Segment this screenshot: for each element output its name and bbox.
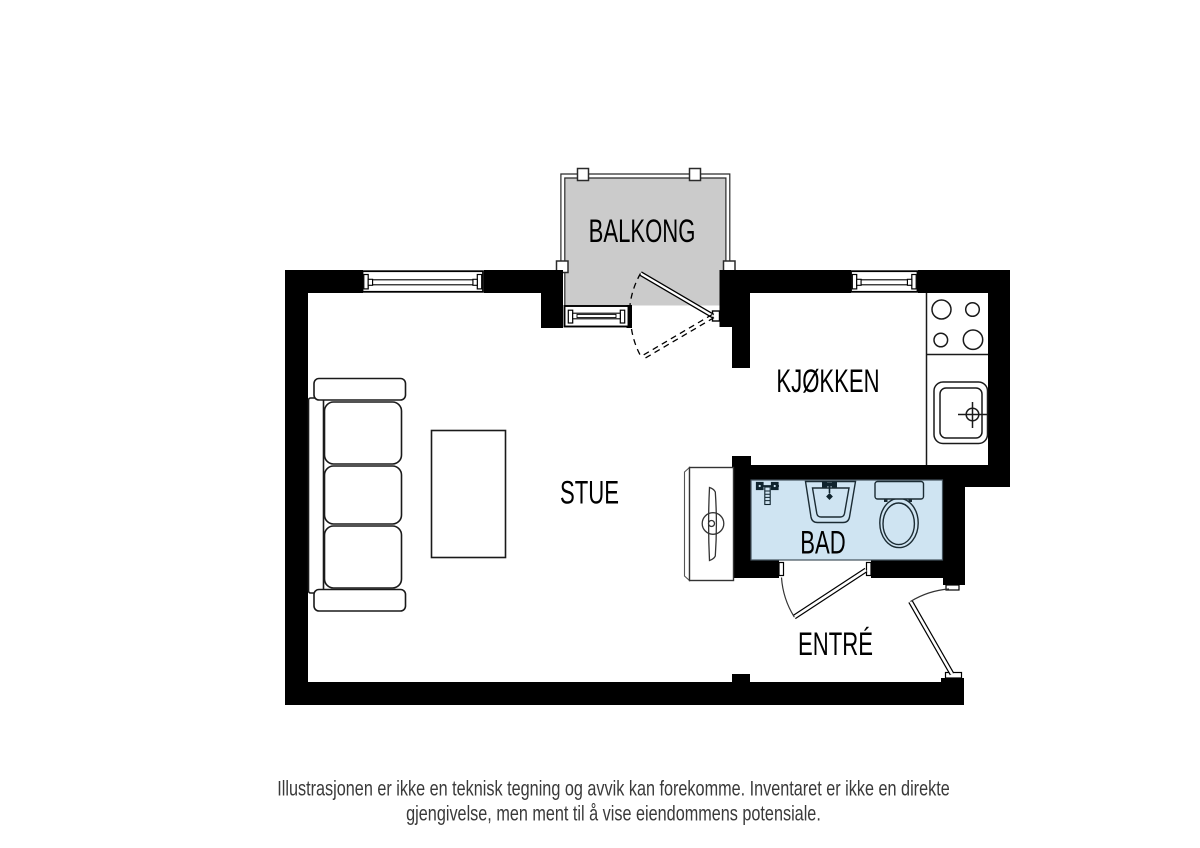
svg-text:KJØKKEN: KJØKKEN [776, 363, 879, 399]
svg-text:BALKONG: BALKONG [589, 213, 696, 249]
svg-text:BAD: BAD [800, 524, 845, 560]
svg-text:gjengivelse, men ment til å vi: gjengivelse, men ment til å vise eiendom… [406, 802, 821, 826]
svg-text:ENTRÉ: ENTRÉ [798, 626, 873, 662]
svg-text:STUE: STUE [560, 474, 619, 510]
svg-text:Illustrasjonen er ikke en tekn: Illustrasjonen er ikke en teknisk tegnin… [277, 777, 949, 801]
